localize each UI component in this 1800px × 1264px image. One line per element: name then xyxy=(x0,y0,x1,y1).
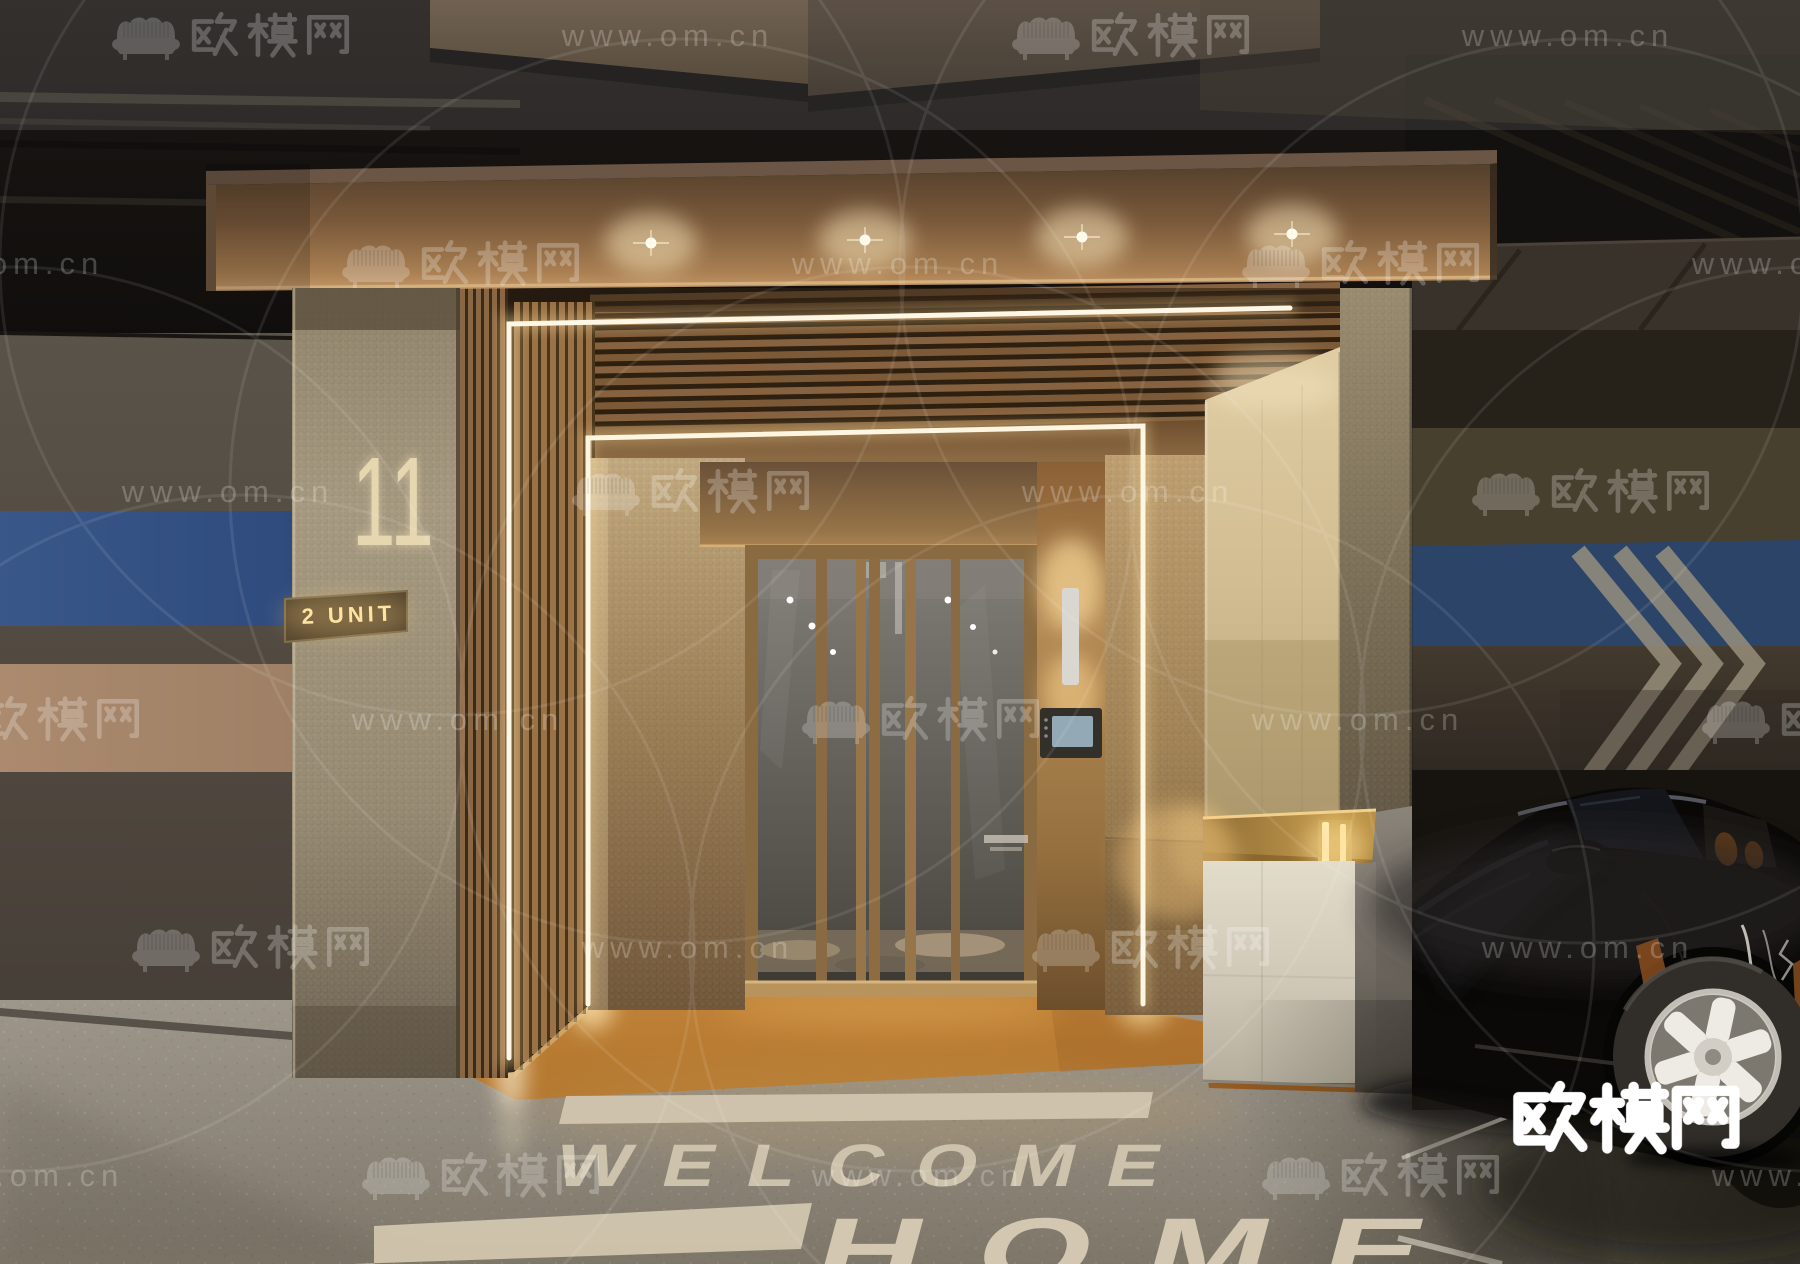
svg-text:www.om.cn: www.om.cn xyxy=(1251,702,1464,737)
svg-text:www.om.cn: www.om.cn xyxy=(791,246,1004,281)
svg-text:www.om.cn: www.om.cn xyxy=(581,930,794,965)
svg-text:www.om.cn: www.om.cn xyxy=(1461,18,1674,53)
svg-text:www.om.cn: www.om.cn xyxy=(351,702,564,737)
svg-text:www.om.cn: www.om.cn xyxy=(1711,1158,1800,1193)
svg-text:www.om.cn: www.om.cn xyxy=(561,18,774,53)
svg-text:www.om.cn: www.om.cn xyxy=(1481,930,1694,965)
svg-text:www.om.cn: www.om.cn xyxy=(811,1158,1024,1193)
svg-text:HOME: HOME xyxy=(805,1200,1492,1264)
svg-text:www.om.cn: www.om.cn xyxy=(0,1158,124,1193)
svg-text:www.om.cn: www.om.cn xyxy=(0,246,104,281)
svg-text:www.om.cn: www.om.cn xyxy=(1021,474,1234,509)
svg-text:www.om.cn: www.om.cn xyxy=(1691,246,1800,281)
svg-text:www.om.cn: www.om.cn xyxy=(121,474,334,509)
svg-text:11: 11 xyxy=(352,432,434,573)
